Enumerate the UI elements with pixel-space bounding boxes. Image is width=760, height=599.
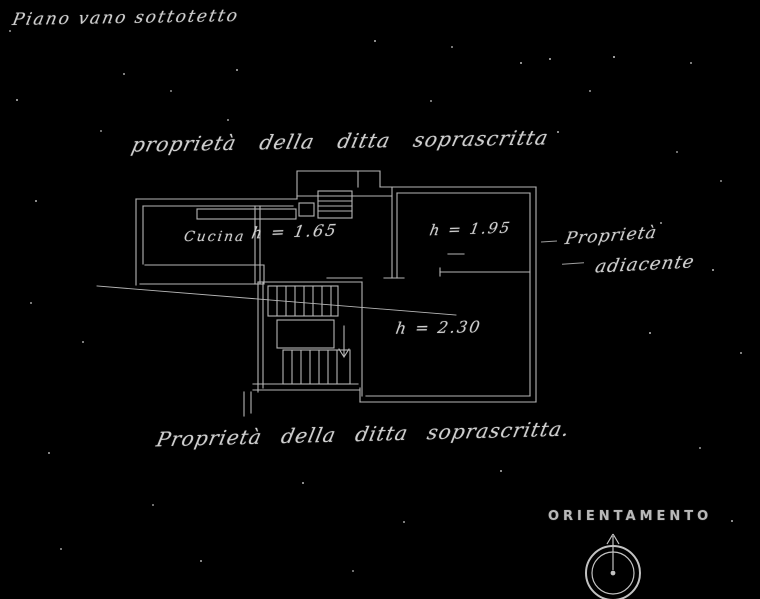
room-label-height-195: h = 1.95: [428, 219, 513, 240]
page-title: Piano vano sottotetto: [11, 6, 241, 30]
room-label-height-230: h = 2.30: [394, 317, 483, 337]
scan-noise-specks: [0, 0, 2, 2]
compass-caption: ORIENTAMENTO: [548, 509, 712, 524]
room-label-height-165: h = 1.65: [250, 221, 339, 243]
scanned-floor-plan-page: Piano vano sottotetto proprietà della di…: [0, 0, 760, 599]
room-label-kitchen: Cucina: [183, 229, 247, 245]
